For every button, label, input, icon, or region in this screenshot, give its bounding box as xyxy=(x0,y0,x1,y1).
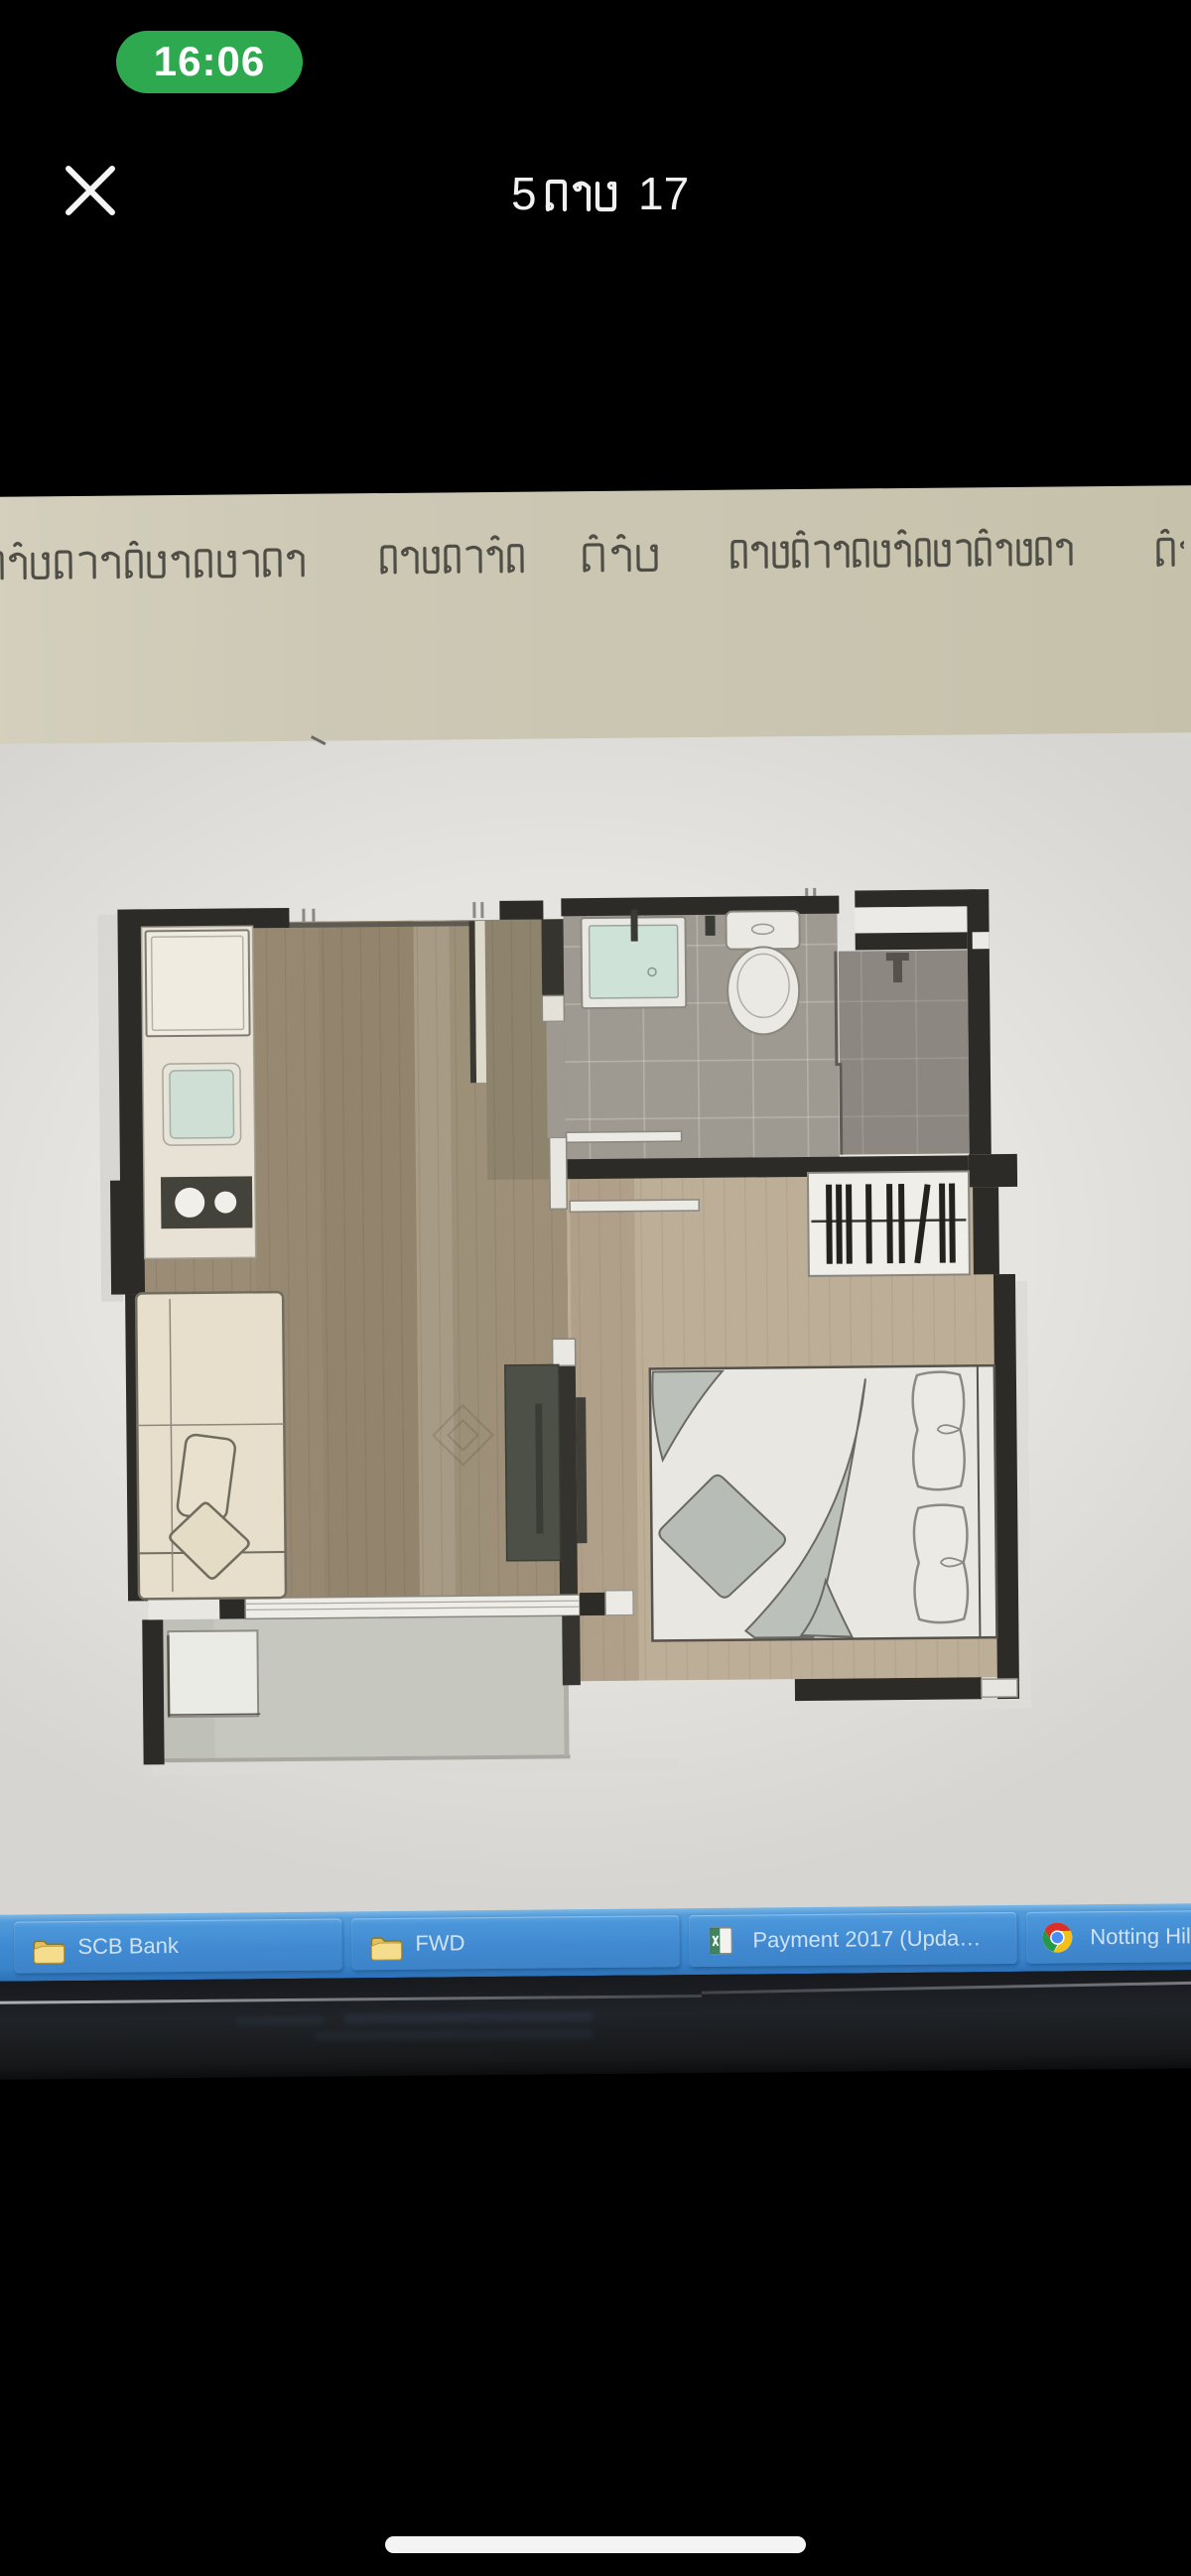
svg-text:5: 5 xyxy=(511,168,537,219)
svg-text:17: 17 xyxy=(638,168,689,219)
